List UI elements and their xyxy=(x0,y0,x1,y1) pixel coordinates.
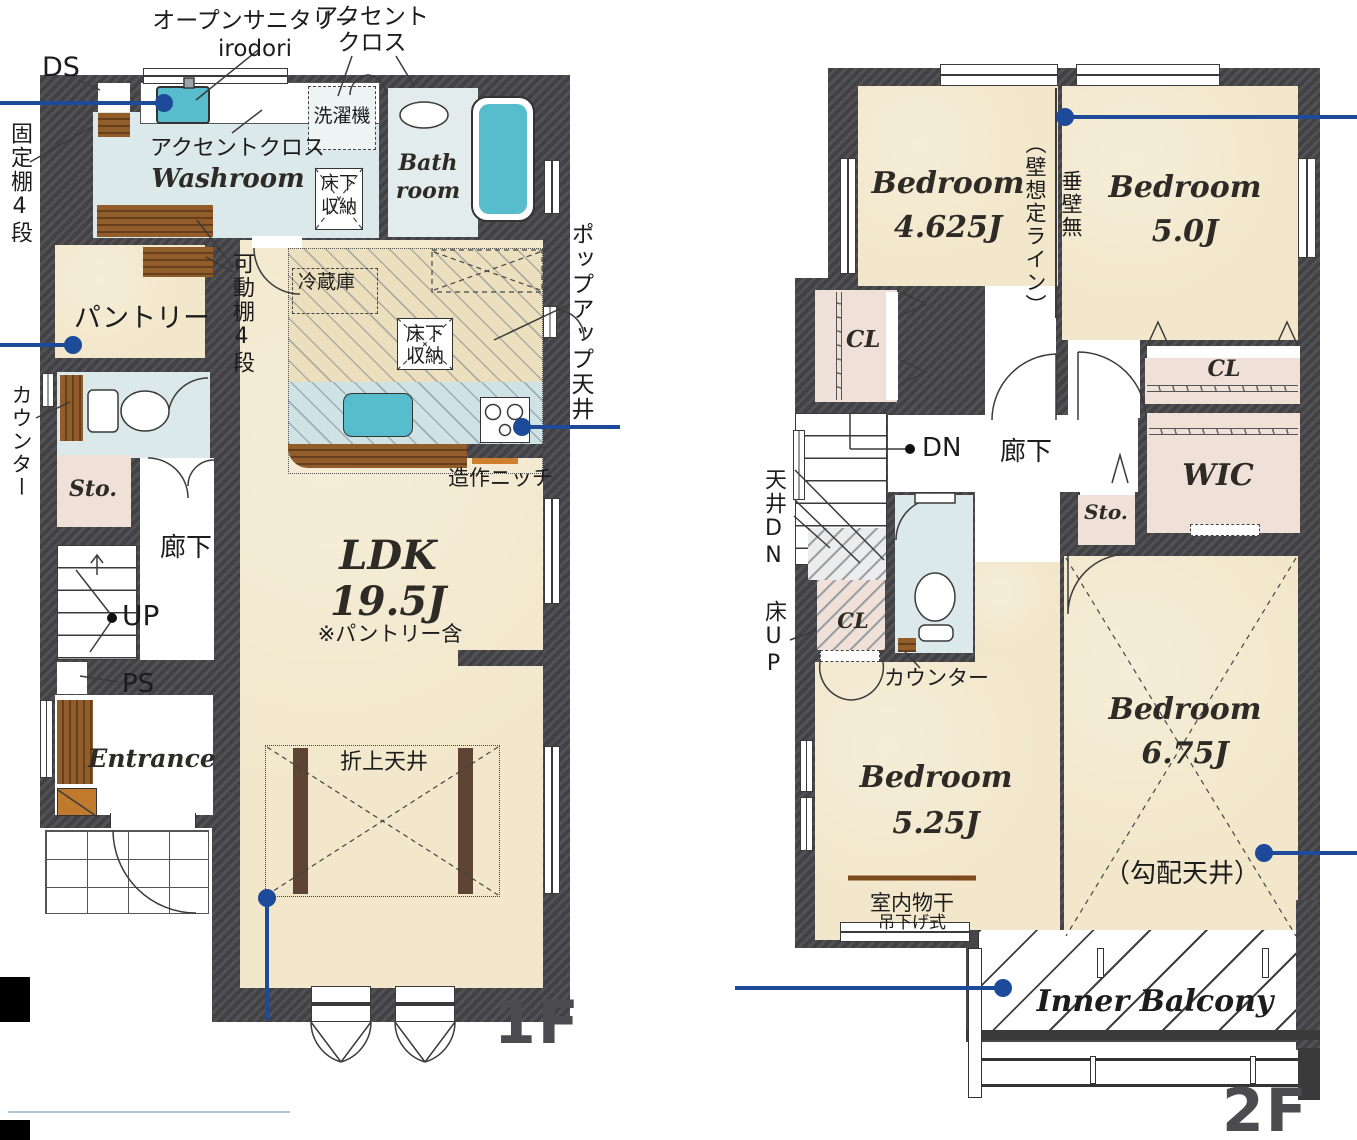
label-ufs-b-1: 床下 xyxy=(406,324,444,346)
dn-leader xyxy=(850,414,908,449)
label-accent-cross-1: アクセント xyxy=(315,4,429,30)
label-floor-up: 床UP xyxy=(762,600,784,685)
callout-dot-coffered xyxy=(258,889,276,907)
label-storage-2f: Sto. xyxy=(1084,500,1128,524)
wic-door-triangle xyxy=(1112,455,1128,483)
label-accent-cross-2: クロス xyxy=(338,30,407,56)
label-entrance: Entrance xyxy=(88,744,215,773)
ps-leader xyxy=(80,676,118,682)
toilet2-tank xyxy=(915,493,955,503)
fixed-shelf-leader xyxy=(30,127,92,162)
toilet1-tank xyxy=(88,390,118,432)
bedroom4-door-arc xyxy=(1068,554,1128,614)
terrace-door-swing-2 xyxy=(395,1022,455,1062)
label-niche: 造作ニッチ xyxy=(448,466,553,490)
label-counter-2f: カウンター xyxy=(884,666,989,690)
label-open-sanitary-sub: irodori xyxy=(218,36,292,62)
label-bedroom4-size: 6.75J xyxy=(1141,736,1228,771)
label-ufs-b-2: 収納 xyxy=(406,346,444,368)
callout-dot-pantry xyxy=(64,336,82,354)
label-movable-shelf: 可動棚4段 xyxy=(230,252,252,402)
label-ldk-note: ※パントリー含 xyxy=(318,622,463,646)
label-floor-2f: 2F xyxy=(1222,1076,1309,1140)
ceiling-down-leader xyxy=(794,516,830,548)
toilet1-bowl xyxy=(121,391,169,431)
hall-door-arcs xyxy=(148,458,214,498)
callout-line-wall-assumed xyxy=(1065,115,1357,119)
label-bedroom4: Bedroom xyxy=(1109,692,1262,727)
stairs-up-arrow xyxy=(91,555,103,575)
label-bedroom1-size: 4.625J xyxy=(894,210,1002,245)
label-floor-1f: 1F xyxy=(494,988,581,1058)
toilet-door-arc xyxy=(168,378,208,418)
accent-cross-top-leaders xyxy=(338,56,414,96)
bedroom1-door-arc xyxy=(992,354,1056,420)
bedroom2-door-arc xyxy=(1078,352,1146,420)
floor-up-leader xyxy=(790,630,816,640)
label-pantry: パントリー xyxy=(74,303,210,334)
floorplan-canvas: DS オープンサニタリー irodori アクセント クロス アクセントクロス … xyxy=(0,0,1357,1140)
label-ds: DS xyxy=(42,52,80,83)
accent-cross-washroom-leader xyxy=(232,110,262,133)
label-hallway-1f: 廊下 xyxy=(160,534,212,564)
stairs2-diagonals xyxy=(795,470,884,563)
washroom-door-arc xyxy=(254,248,300,294)
label-ufs-a-1: 床下 xyxy=(321,174,357,195)
movable-shelf-leaders xyxy=(197,220,233,272)
callout-dot-stove xyxy=(513,418,531,436)
callout-dot-wall-assumed xyxy=(1056,108,1074,126)
counter-leader xyxy=(36,402,70,418)
label-bedroom2-size: 5.0J xyxy=(1152,214,1218,249)
callout-line-coffered xyxy=(265,898,269,1020)
entrance-door-arc xyxy=(113,830,196,913)
label-up: UP xyxy=(122,600,159,632)
label-ps: PS xyxy=(122,670,154,700)
callout-line-balcony xyxy=(735,986,1003,990)
label-no-hanging-wall: 垂壁無 xyxy=(1060,170,1081,260)
label-bath-1: Bath xyxy=(398,150,457,176)
kitchen-dashed-x xyxy=(434,252,540,290)
bath-oval xyxy=(400,102,448,128)
label-inner-balcony: Inner Balcony xyxy=(1037,984,1274,1019)
f1-lines xyxy=(30,50,584,1062)
label-popup-ceiling: ポップアップ天井 xyxy=(568,222,591,402)
label-bedroom2: Bedroom xyxy=(1109,170,1262,205)
toilet2-base xyxy=(919,625,953,641)
label-fixed-shelf: 固定棚4段 xyxy=(8,122,30,282)
label-storage-1f: Sto. xyxy=(69,476,117,502)
label-sloped-ceiling: （勾配天井） xyxy=(1104,860,1260,890)
accent-corner-arcs xyxy=(350,75,386,95)
label-ceiling-down: 天井DN xyxy=(762,468,784,573)
label-hallway-2f: 廊下 xyxy=(1000,438,1052,468)
label-bath-2: room xyxy=(396,178,460,204)
sink-faucet xyxy=(184,78,194,88)
callout-dot-sanitary xyxy=(155,94,173,112)
toilet2-bowl xyxy=(915,573,955,621)
label-ldk-size: 19.5J xyxy=(330,578,446,625)
label-bedroom3-size: 5.25J xyxy=(892,806,979,841)
bedroom3-door-arcs xyxy=(820,662,884,700)
callout-line-sanitary xyxy=(0,101,163,105)
label-cl-left: CL xyxy=(846,326,880,353)
terrace-door-swing-1 xyxy=(311,1022,371,1062)
toilet2-door-arc xyxy=(896,498,938,540)
label-counter-1f: カウンター xyxy=(10,384,31,499)
label-fridge: 冷蔵庫 xyxy=(298,272,355,294)
callout-dot-slope xyxy=(1255,844,1273,862)
label-accent-cross-washroom: アクセントクロス xyxy=(150,136,325,161)
label-washer: 洗濯機 xyxy=(313,106,370,128)
label-dn: DN xyxy=(922,434,961,464)
label-cl-bottom: CL xyxy=(837,608,868,633)
callout-line-pantry xyxy=(0,343,73,347)
callout-line-stove xyxy=(527,425,620,429)
stove-burner-3 xyxy=(500,425,511,436)
entrance-step-diagonal xyxy=(58,790,96,816)
label-indoor-drying: 室内物干 xyxy=(870,891,954,915)
label-washroom: Washroom xyxy=(151,164,304,194)
label-wic: WIC xyxy=(1182,458,1254,493)
callout-line-slope xyxy=(1264,851,1357,855)
cl-left-fold-triangles xyxy=(900,292,926,384)
label-coffered: 折上天井 xyxy=(340,750,428,775)
label-wall-assumed-line: （壁想定ライン） xyxy=(1024,133,1045,308)
label-cl-right: CL xyxy=(1208,356,1241,382)
cl-right-fold-triangles xyxy=(1148,322,1297,344)
label-bedroom1: Bedroom xyxy=(872,166,1025,201)
label-ufs-a-2: 収納 xyxy=(321,198,357,219)
dn-dot xyxy=(905,444,915,454)
label-ldk: LDK xyxy=(339,532,437,579)
label-bedroom3: Bedroom xyxy=(860,760,1013,795)
up-dot xyxy=(107,613,117,623)
stove-burner-1 xyxy=(486,405,501,420)
callout-dot-balcony xyxy=(994,979,1012,997)
label-hanging-type: 吊下げ式 xyxy=(878,914,946,934)
ds-leader xyxy=(78,80,100,90)
up-leaders xyxy=(76,570,112,652)
